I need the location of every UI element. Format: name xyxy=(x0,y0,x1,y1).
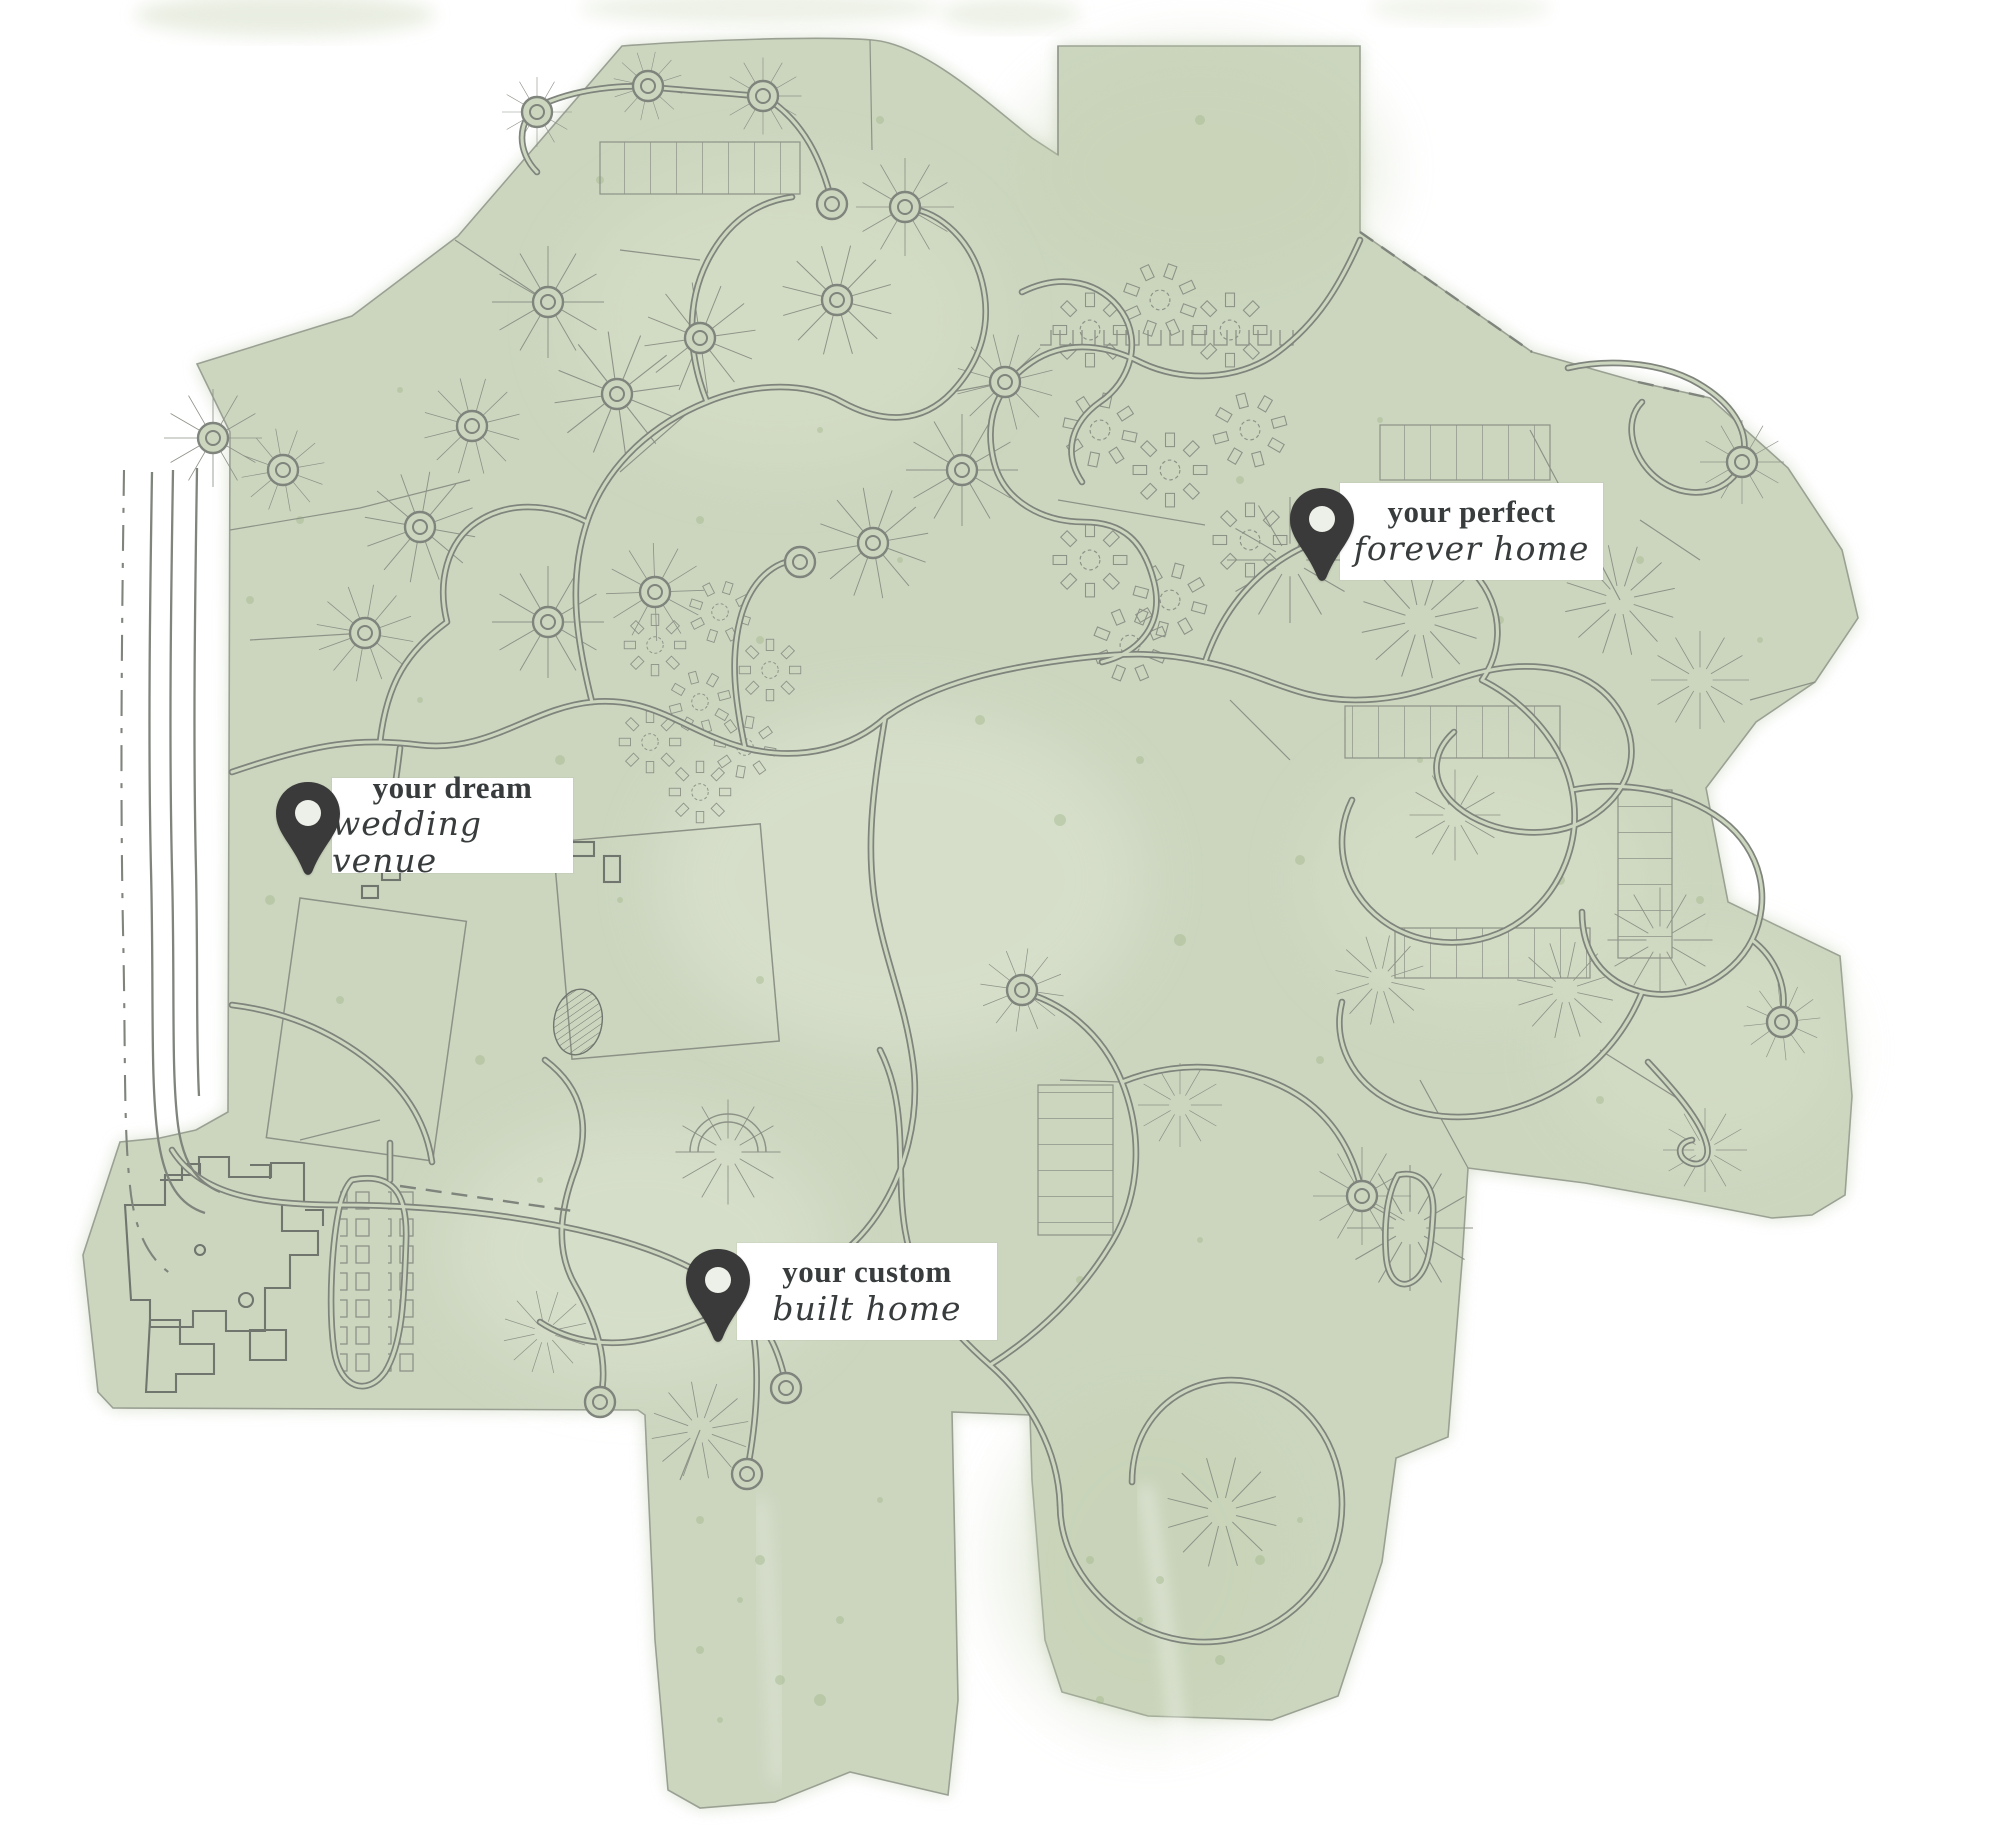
marker-subtitle: forever home xyxy=(1354,531,1590,567)
marker-subtitle: wedding venue xyxy=(332,806,573,879)
map-pin-icon[interactable] xyxy=(273,779,343,879)
community-map: your perfect forever home your dream wed… xyxy=(0,0,2000,1825)
map-pin-icon[interactable] xyxy=(1287,485,1357,585)
marker-label[interactable]: your perfect forever home xyxy=(1340,483,1603,580)
map-canvas xyxy=(0,0,2000,1825)
marker-title: your dream xyxy=(373,772,533,805)
marker-label[interactable]: your dream wedding venue xyxy=(332,778,573,873)
map-pin-icon[interactable] xyxy=(683,1246,753,1346)
marker-subtitle: built home xyxy=(772,1291,961,1327)
marker-title: your perfect xyxy=(1387,496,1555,529)
landmass xyxy=(83,0,1858,1808)
marker-title: your custom xyxy=(782,1256,951,1289)
marker-label[interactable]: your custom built home xyxy=(737,1243,997,1340)
